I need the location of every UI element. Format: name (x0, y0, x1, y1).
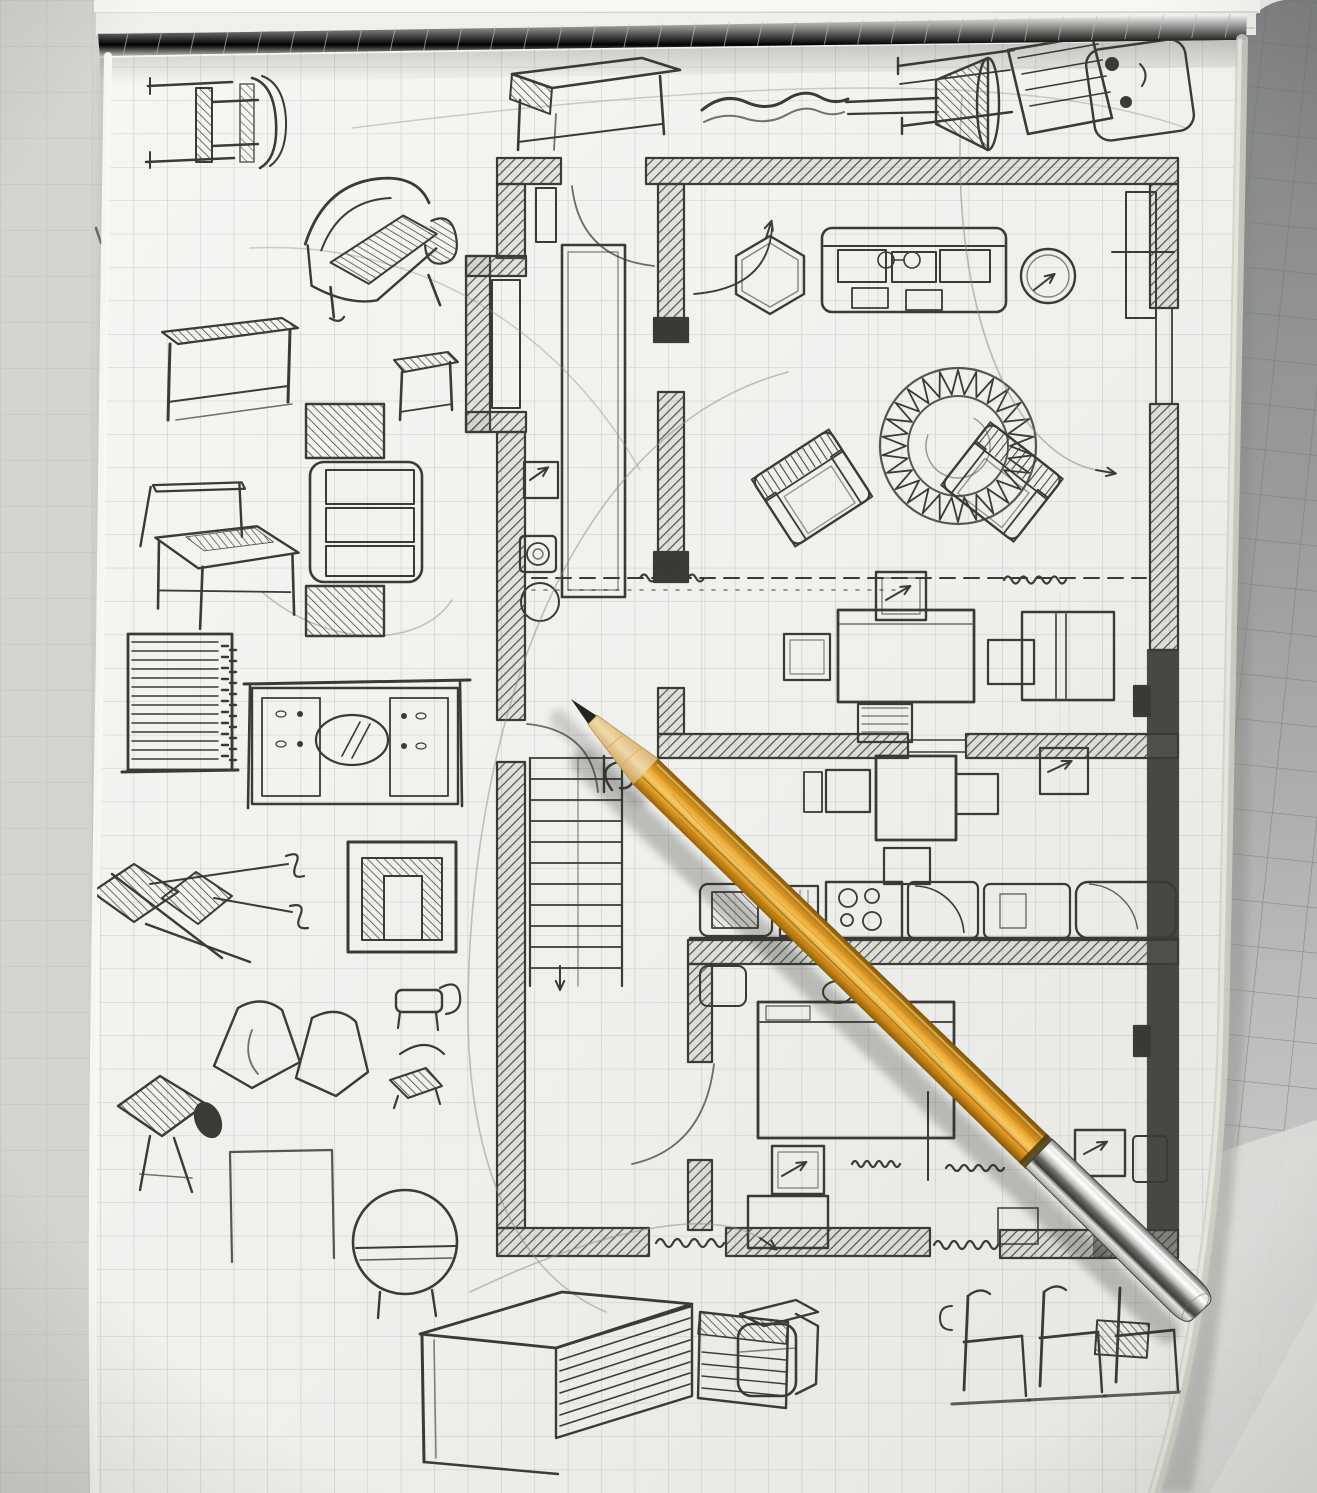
photo-vignette (0, 0, 1317, 1493)
floor-plan-sketch-photo (0, 0, 1317, 1493)
photo-stage: Photograph of a hand-drawn architectural… (0, 0, 1317, 1493)
